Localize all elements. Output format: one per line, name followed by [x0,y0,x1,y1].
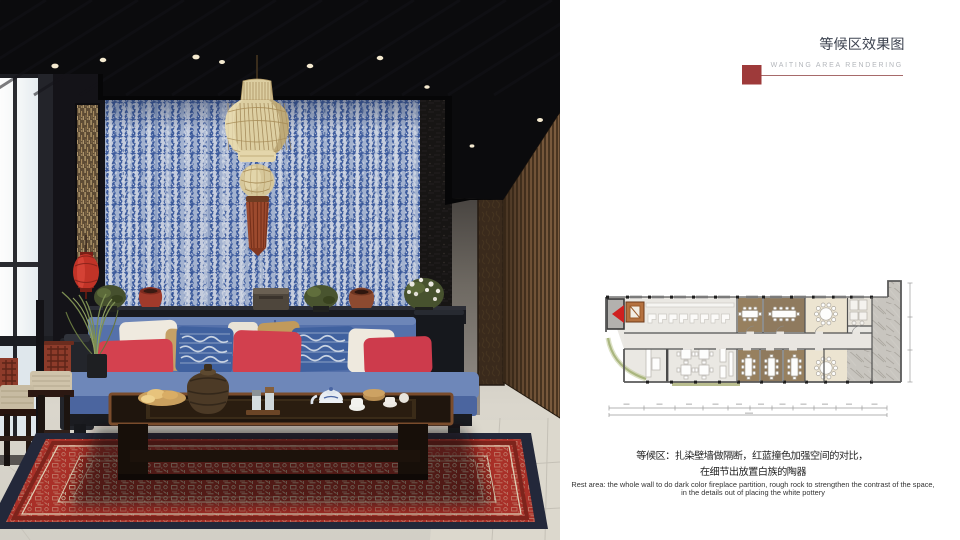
svg-text:in the details out of placing: in the details out of placing the white … [681,488,825,497]
svg-text:WAITING AREA RENDERING: WAITING AREA RENDERING [771,62,903,69]
